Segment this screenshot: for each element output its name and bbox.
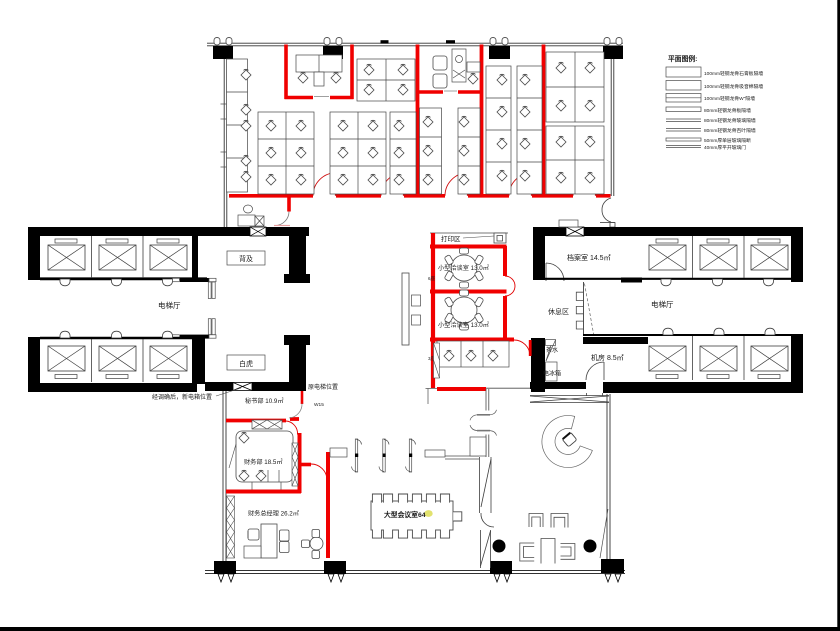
svg-text:50mm厚单层玻璃隔断: 50mm厚单层玻璃隔断 — [704, 137, 751, 144]
svg-text:小型洽谈室 13.0㎡: 小型洽谈室 13.0㎡ — [438, 321, 490, 329]
svg-text:电梯厅: 电梯厅 — [158, 300, 181, 310]
svg-text:机房 8.5㎡: 机房 8.5㎡ — [591, 353, 624, 362]
svg-text:40mm厚平开玻璃门: 40mm厚平开玻璃门 — [704, 144, 746, 151]
svg-text:电梯厅: 电梯厅 — [651, 299, 674, 309]
svg-text:财务部 18.5㎡: 财务部 18.5㎡ — [244, 458, 283, 466]
svg-text:电冰箱: 电冰箱 — [543, 370, 561, 378]
svg-text:打印区: 打印区 — [441, 234, 461, 243]
svg-text:原电梯位置: 原电梯位置 — [308, 383, 338, 391]
svg-text:秘书部 10.9㎡: 秘书部 10.9㎡ — [245, 397, 284, 405]
svg-text:大型会议室64: 大型会议室64 — [384, 510, 426, 519]
svg-text:80mm轻钢龙骨玻璃隔墙: 80mm轻钢龙骨玻璃隔墙 — [704, 117, 756, 124]
svg-text:休息区: 休息区 — [548, 307, 569, 316]
svg-text:6座: 6座 — [428, 275, 436, 282]
svg-text:小型洽谈室 13.0㎡: 小型洽谈室 13.0㎡ — [438, 264, 490, 272]
svg-text:100mm轻钢龙骨W"隔墙: 100mm轻钢龙骨W"隔墙 — [704, 95, 755, 102]
svg-text:平面图例:: 平面图例: — [668, 54, 697, 63]
svg-text:财务总经理 26.2㎡: 财务总经理 26.2㎡ — [248, 510, 300, 518]
svg-text:经调确后，新电箱位置: 经调确后，新电箱位置 — [152, 393, 212, 401]
svg-text:档案室 14.5㎡: 档案室 14.5㎡ — [567, 253, 611, 262]
svg-text:80mm轻钢龙骨板隔墙: 80mm轻钢龙骨板隔墙 — [704, 107, 751, 114]
svg-text:W15: W15 — [314, 402, 324, 408]
svg-text:背及: 背及 — [239, 254, 253, 263]
svg-text:100mm轻钢龙骨石膏板隔墙: 100mm轻钢龙骨石膏板隔墙 — [704, 70, 763, 77]
svg-text:80mm轻钢龙骨百叶隔墙: 80mm轻钢龙骨百叶隔墙 — [704, 127, 756, 134]
svg-text:100mm轻钢龙骨吸音棉隔墙: 100mm轻钢龙骨吸音棉隔墙 — [704, 83, 763, 90]
svg-text:白虎: 白虎 — [239, 359, 253, 368]
